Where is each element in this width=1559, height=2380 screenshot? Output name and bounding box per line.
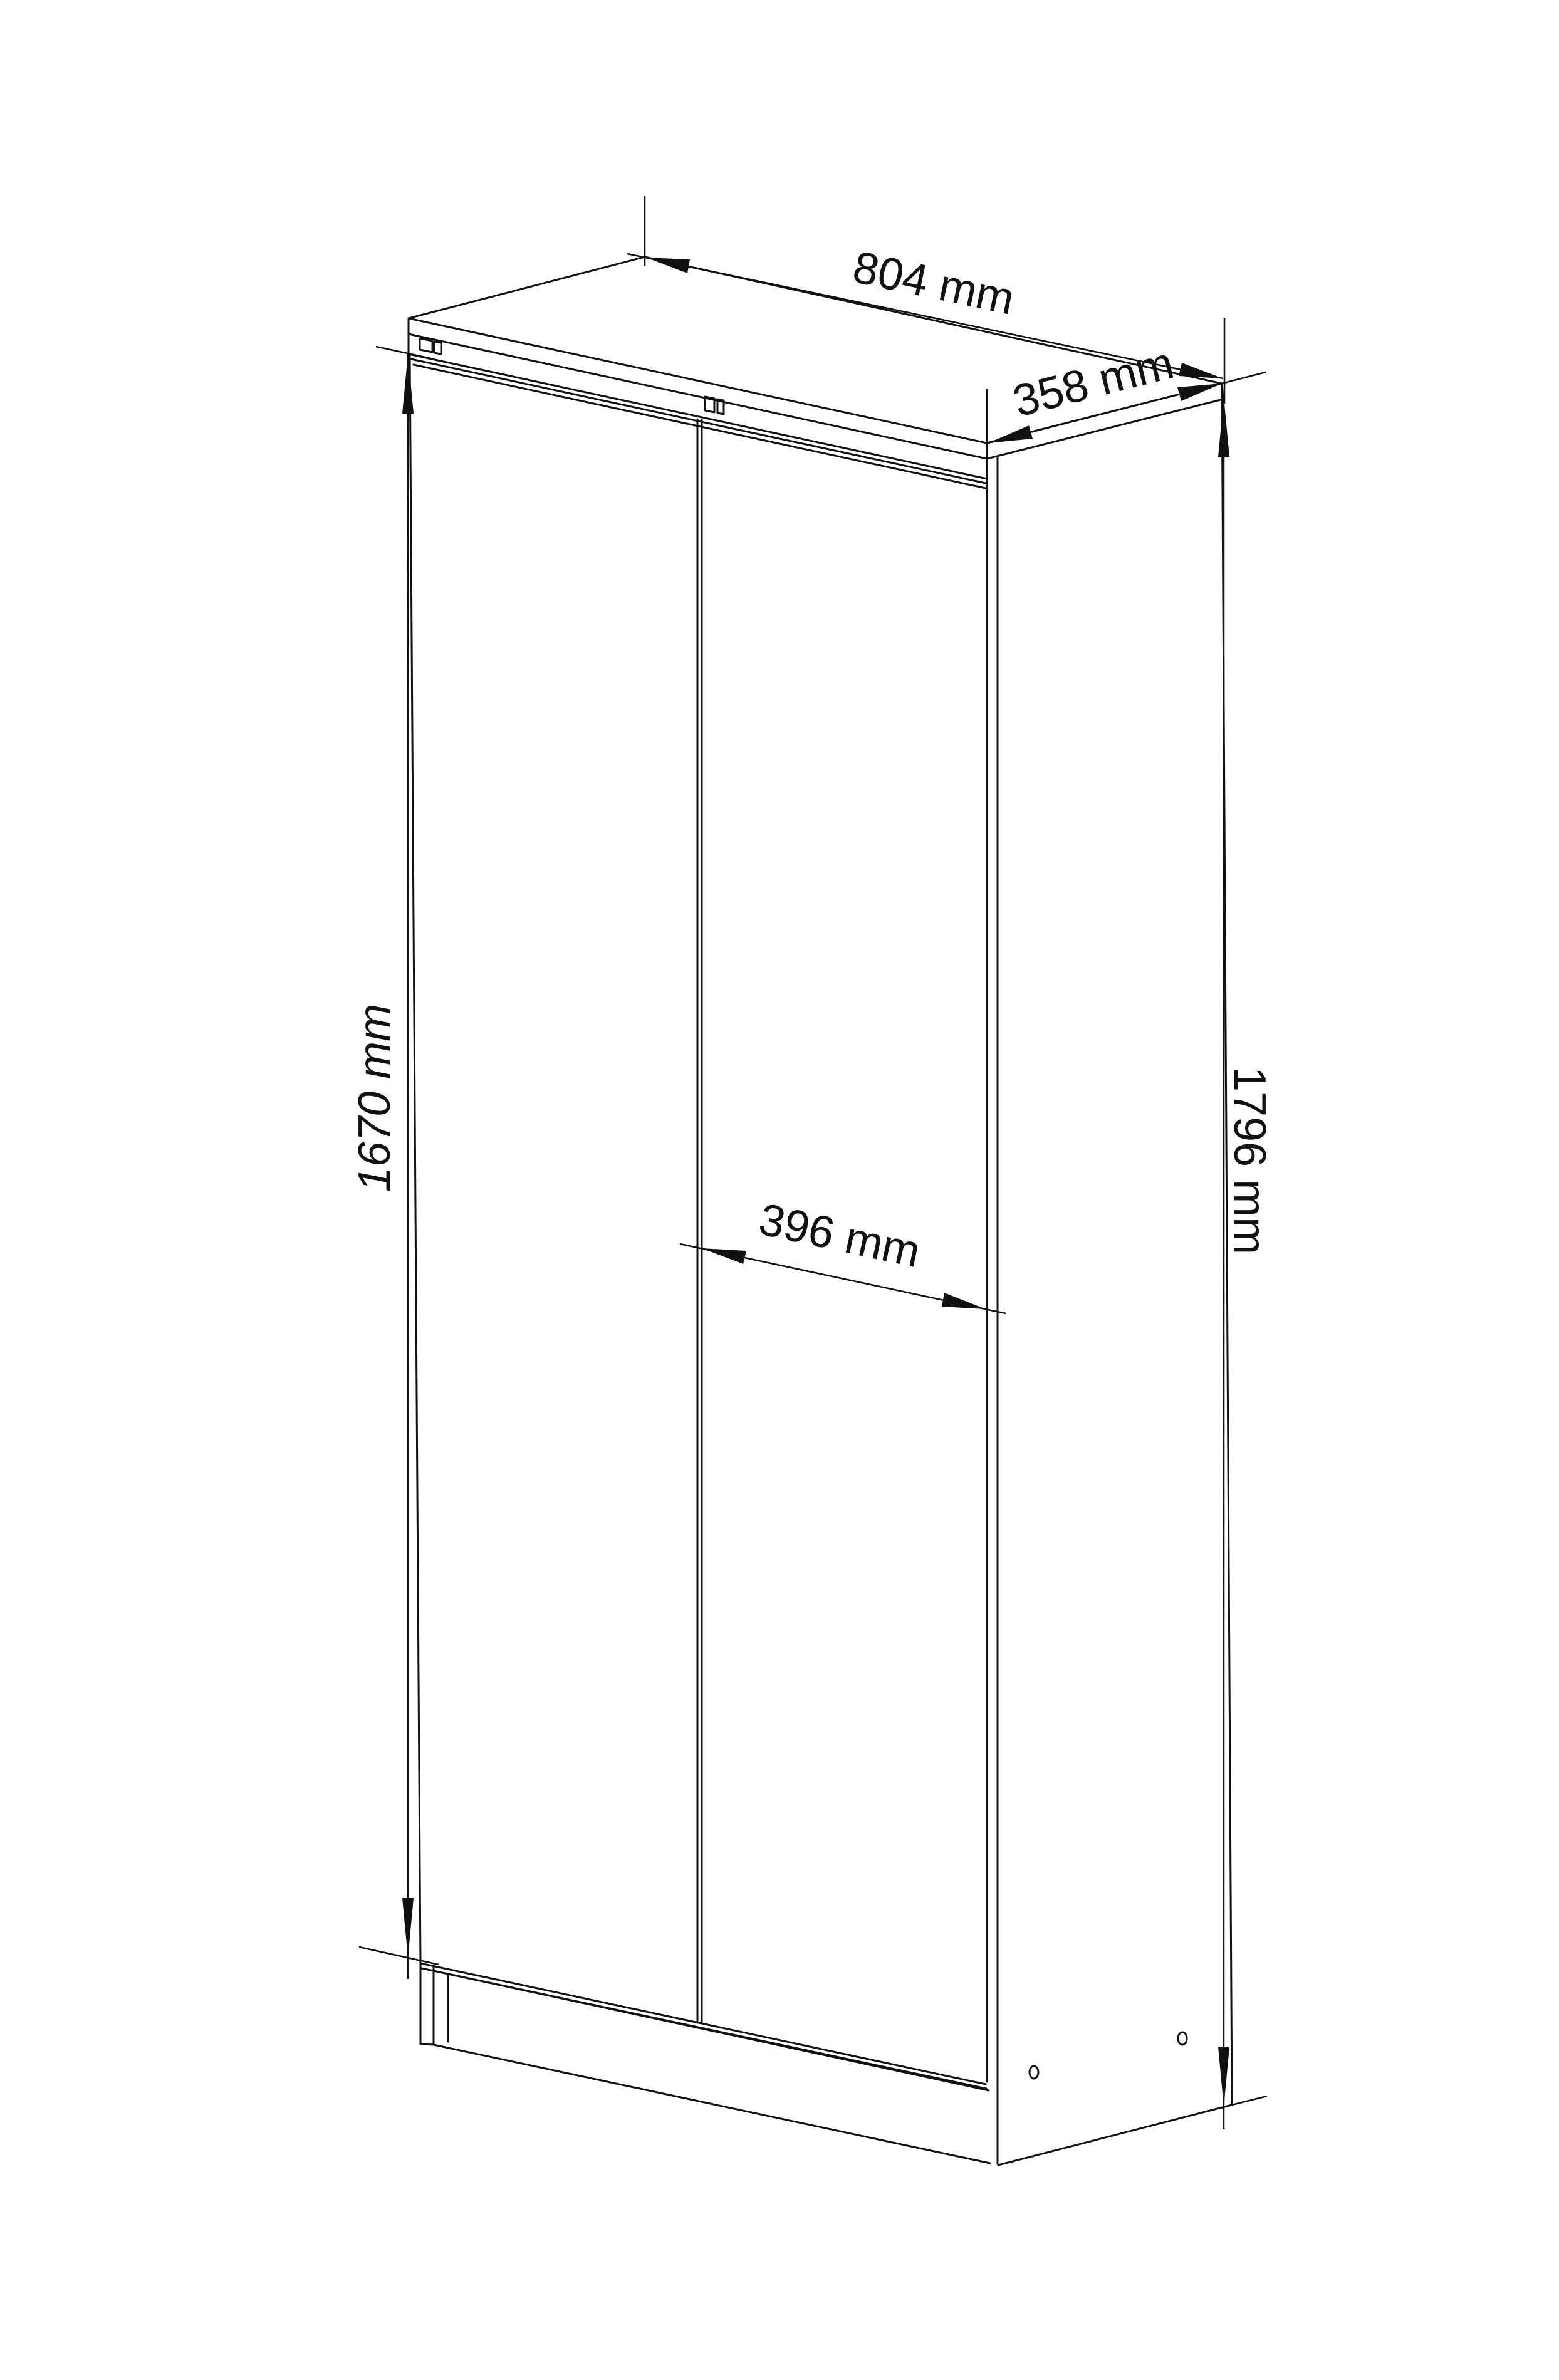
left-door-left-edge: [410, 355, 420, 1963]
door-top-edge-inner: [414, 365, 986, 488]
arrowhead-bottom: [402, 1898, 414, 1958]
cam-hole: [1178, 2032, 1187, 2045]
extension-line: [359, 1947, 439, 1965]
arrowhead-bottom: [1218, 2047, 1229, 2107]
wardrobe-drawing-canvas: 804 mm 358 mm 396 mm 1670 mm: [0, 0, 1559, 2380]
wardrobe-dimension-drawing: 804 mm 358 mm 396 mm 1670 mm: [0, 0, 1559, 2380]
extension-line: [376, 347, 431, 358]
arrowhead-left: [702, 1248, 746, 1264]
dim-label-width-top: 804 mm: [849, 242, 1019, 324]
hinge-plate: [434, 342, 441, 354]
arrowhead-left: [988, 425, 1033, 443]
dimension-door-height: 1670 mm: [350, 347, 439, 1979]
dimension-door-width: 396 mm: [680, 1194, 1006, 1313]
arrowhead-left: [646, 258, 690, 273]
door-gap-line: [697, 419, 702, 2023]
side-panel-bottom-edge: [998, 2105, 1232, 2165]
arrowhead-right: [942, 1293, 986, 1309]
extension-line: [1232, 2096, 1267, 2105]
dim-label-door-height: 1670 mm: [350, 1004, 400, 1192]
arrowhead-top: [402, 354, 414, 414]
arrowhead-right: [1177, 384, 1222, 401]
arrowhead-top: [1218, 397, 1229, 457]
cam-hole: [1030, 2066, 1038, 2079]
plinth: [420, 1963, 990, 2163]
dim-label-total-height: 1796 mm: [1224, 1067, 1275, 1255]
hinge-plate: [420, 338, 432, 352]
arrowhead-right: [1179, 363, 1223, 378]
door-bottom-edge: [420, 1963, 986, 2089]
